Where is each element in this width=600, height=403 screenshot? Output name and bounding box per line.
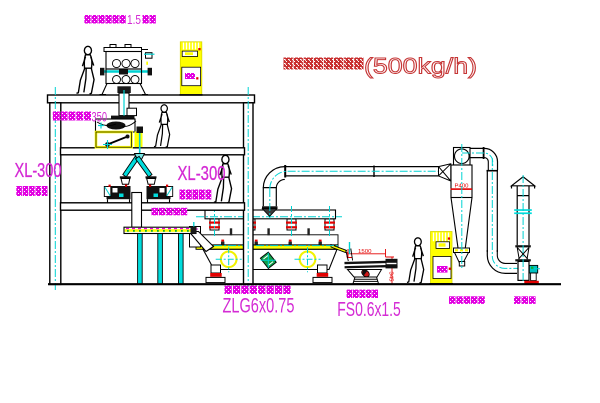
svg-text:XL-300: XL-300 [178,162,226,185]
svg-text:345: 345 [388,272,394,282]
svg-text:1.5: 1.5 [127,13,141,27]
svg-text:(500kg/h): (500kg/h) [364,54,477,79]
svg-text:ZLG6x0.75: ZLG6x0.75 [223,294,295,318]
svg-text:XL-300: XL-300 [15,159,62,182]
svg-text:FS0.6x1.5: FS0.6x1.5 [337,299,401,321]
svg-text:350: 350 [92,109,108,124]
svg-text:1500: 1500 [358,249,372,255]
